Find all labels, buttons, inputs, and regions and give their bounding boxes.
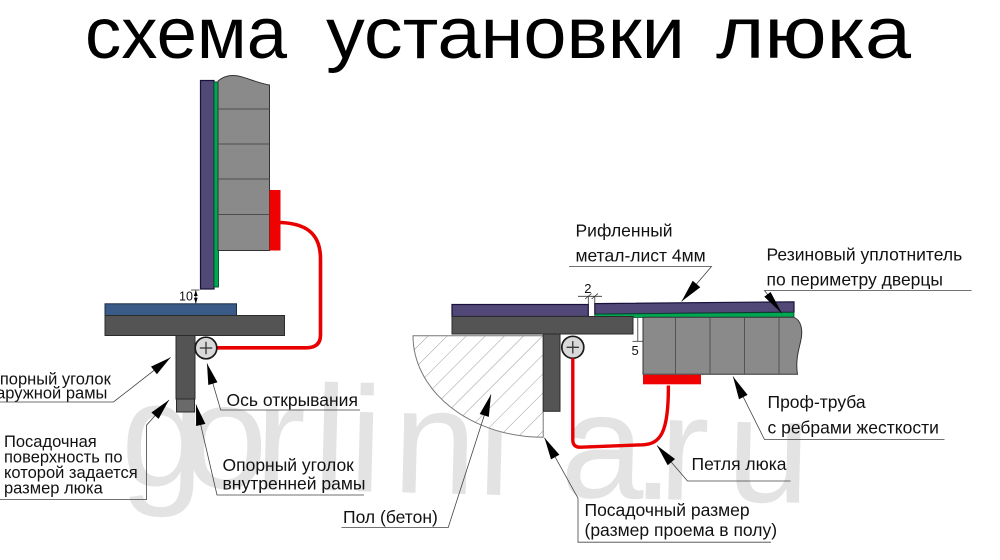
svg-text:по периметру дверцы: по периметру дверцы: [767, 270, 944, 290]
svg-text:(размер проема в полу): (размер проема в полу): [585, 520, 778, 540]
svg-text:Посадочный размер: Посадочный размер: [585, 500, 750, 520]
svg-text:люка: люка: [716, 0, 912, 74]
svg-text:с ребрами жесткости: с ребрами жесткости: [768, 418, 939, 438]
svg-text:схема: схема: [85, 0, 288, 74]
svg-text:внутренней рамы: внутренней рамы: [223, 474, 366, 494]
svg-text:10: 10: [179, 290, 193, 304]
svg-text:2: 2: [584, 281, 591, 296]
svg-text:5: 5: [632, 343, 639, 358]
svg-text:Пол (бетон): Пол (бетон): [343, 507, 438, 527]
svg-text:Ось открывания: Ось открывания: [227, 390, 358, 410]
svg-text:Петля люка: Петля люка: [692, 454, 787, 474]
svg-text:наружной рамы: наружной рамы: [0, 385, 107, 403]
svg-text:Проф-труба: Проф-труба: [768, 392, 866, 412]
svg-text:Рифленный: Рифленный: [576, 221, 673, 241]
svg-text:установки: установки: [326, 0, 685, 74]
svg-text:Резиновый уплотнитель: Резиновый уплотнитель: [767, 245, 963, 265]
svg-text:Опорный уголок: Опорный уголок: [223, 455, 355, 475]
svg-text:размер люка: размер люка: [4, 480, 104, 498]
svg-text:метал-лист 4мм: метал-лист 4мм: [576, 246, 706, 266]
